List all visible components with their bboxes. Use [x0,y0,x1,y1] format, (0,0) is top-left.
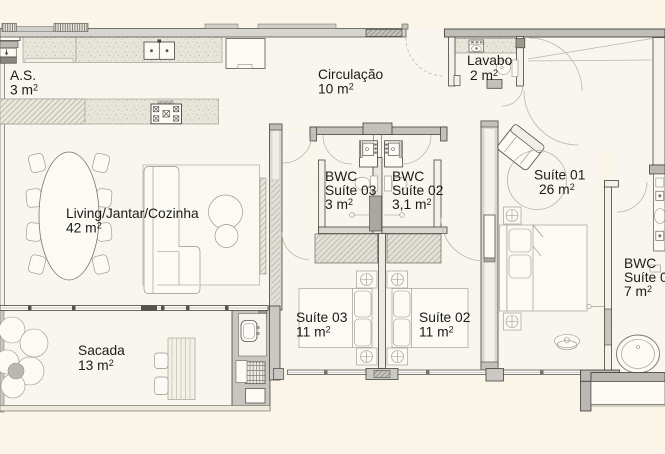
svg-text:Suíte 02: Suíte 02 [392,183,443,198]
svg-text:Suíte 01: Suíte 01 [534,168,585,183]
svg-text:Lavabo: Lavabo [467,53,513,68]
svg-text:26 m2: 26 m2 [539,182,575,197]
svg-text:BWC: BWC [392,169,424,184]
svg-text:Sacada: Sacada [78,343,125,358]
svg-text:Suíte 03: Suíte 03 [325,183,377,198]
svg-text:Suíte 02: Suíte 02 [419,310,470,325]
svg-text:42 m2: 42 m2 [66,221,102,236]
svg-text:BWC: BWC [325,169,357,184]
svg-text:Circulação: Circulação [318,67,384,82]
svg-text:11 m2: 11 m2 [419,325,454,340]
svg-text:Suíte 03: Suíte 03 [296,310,348,325]
svg-text:A.S.: A.S. [10,68,36,83]
svg-text:BWC: BWC [624,256,656,271]
svg-text:13 m2: 13 m2 [78,358,114,373]
svg-text:11 m2: 11 m2 [296,325,331,340]
svg-text:10 m2: 10 m2 [318,82,354,97]
svg-text:Suíte 01: Suíte 01 [624,270,665,285]
svg-text:3,1 m2: 3,1 m2 [392,197,432,212]
svg-text:Living/Jantar/Cozinha: Living/Jantar/Cozinha [66,206,199,221]
